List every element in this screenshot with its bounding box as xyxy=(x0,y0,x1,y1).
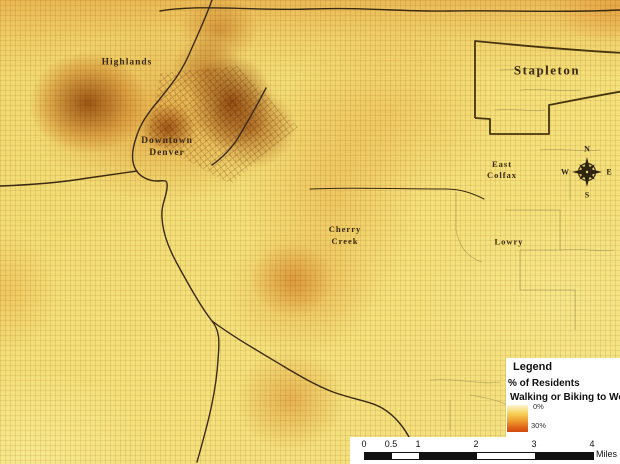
scalebar-tick-0-5: 0.5 xyxy=(385,439,398,449)
stapleton-boundary xyxy=(475,41,620,134)
scalebar-panel: 0 0.5 1 2 3 4 Miles xyxy=(350,437,620,464)
label-highlands: Highlands xyxy=(102,58,153,69)
river-highway xyxy=(133,0,219,462)
label-cherry-creek-line1: Cherry xyxy=(329,223,361,235)
scalebar-segment xyxy=(477,453,535,459)
scalebar-segment xyxy=(392,453,419,459)
compass-north-label: N xyxy=(584,145,590,154)
label-east-colfax-line2: Colfax xyxy=(487,170,517,181)
legend-title: Legend xyxy=(513,361,552,373)
compass-west-label: W xyxy=(561,168,569,177)
legend-subtitle-line2: Walking or Biking to Work xyxy=(510,392,620,403)
scalebar-tick-1: 1 xyxy=(415,439,420,449)
label-downtown-line1: Downtown xyxy=(141,135,193,147)
scalebar-bar xyxy=(364,452,594,460)
label-downtown-line2: Denver xyxy=(141,147,193,159)
legend-panel: Legend % of Residents Walking or Biking … xyxy=(506,358,620,437)
label-cherry-creek: Cherry Creek xyxy=(329,223,361,247)
scalebar-segment xyxy=(419,453,477,459)
map-figure: Highlands Downtown Denver Stapleton East… xyxy=(0,0,620,464)
legend-max-label: 30% xyxy=(531,421,546,430)
scalebar-tick-3: 3 xyxy=(531,439,536,449)
label-east-colfax-line1: East xyxy=(487,159,517,170)
scalebar-tick-2: 2 xyxy=(473,439,478,449)
label-cherry-creek-line2: Creek xyxy=(329,235,361,247)
label-east-colfax: East Colfax xyxy=(487,159,517,181)
compass-rose: N E S W xyxy=(560,144,614,200)
legend-subtitle-line1: % of Residents xyxy=(508,378,580,389)
label-lowry: Lowry xyxy=(494,237,523,248)
northeast-diagonal-road xyxy=(212,88,266,165)
scalebar-tick-4: 4 xyxy=(589,439,594,449)
scalebar-unit-label: Miles xyxy=(596,449,617,459)
compass-south-label: S xyxy=(585,191,589,200)
colfax-road xyxy=(310,188,484,199)
southeast-road xyxy=(212,321,415,452)
scalebar-segment xyxy=(535,453,593,459)
west-road xyxy=(0,171,137,186)
top-road xyxy=(160,8,620,12)
label-downtown-denver: Downtown Denver xyxy=(141,135,193,159)
compass-east-label: E xyxy=(606,168,611,177)
label-stapleton: Stapleton xyxy=(514,65,580,76)
scalebar-tick-0: 0 xyxy=(361,439,366,449)
scalebar-segment xyxy=(365,453,392,459)
legend-min-label: 0% xyxy=(533,402,544,411)
legend-color-ramp xyxy=(507,405,528,432)
